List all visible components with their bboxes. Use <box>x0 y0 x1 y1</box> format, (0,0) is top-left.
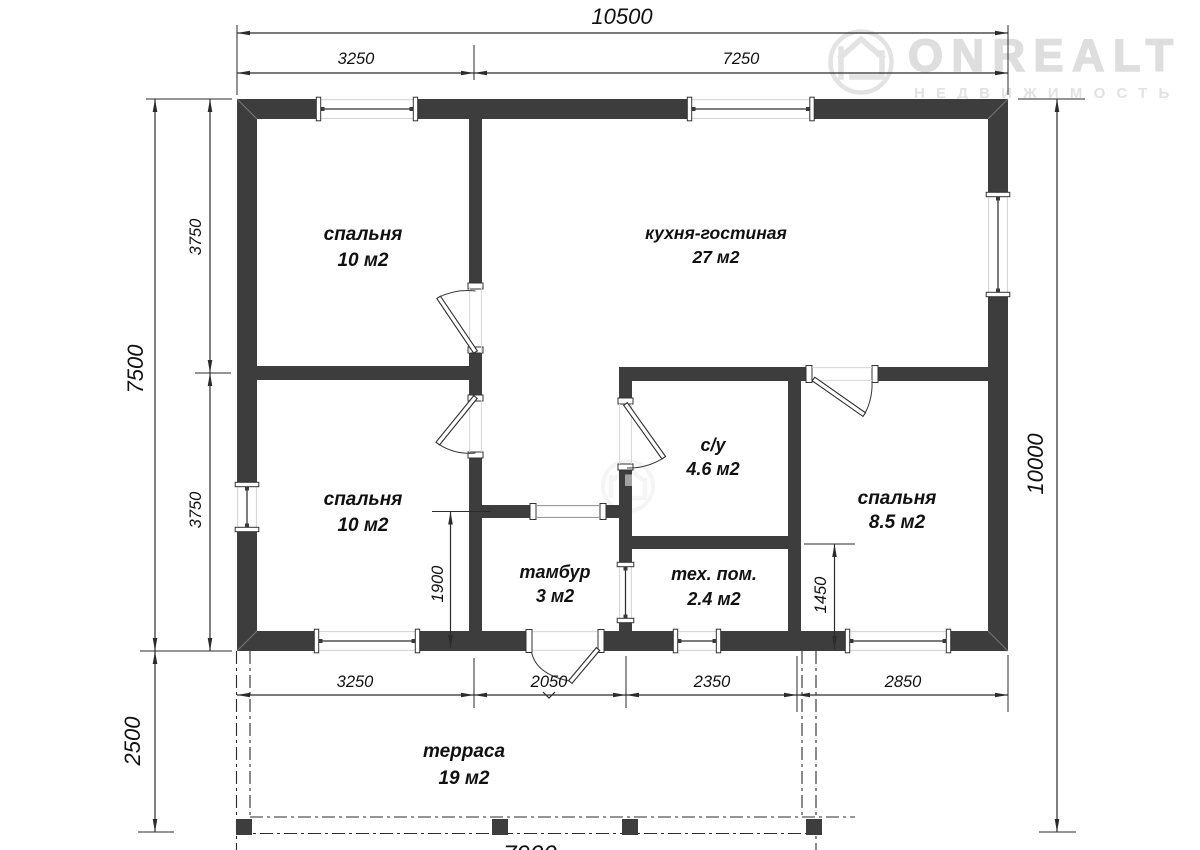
svg-text:19 м2: 19 м2 <box>438 768 489 789</box>
svg-text:тех. пом.: тех. пом. <box>671 564 757 584</box>
svg-text:тамбур: тамбур <box>519 562 590 582</box>
svg-text:10500: 10500 <box>591 4 653 29</box>
svg-text:2500: 2500 <box>120 716 145 767</box>
svg-text:10000: 10000 <box>1023 433 1048 495</box>
svg-text:1900: 1900 <box>429 565 447 603</box>
svg-text:7250: 7250 <box>723 50 761 68</box>
svg-text:7500: 7500 <box>123 344 148 394</box>
svg-text:1450: 1450 <box>812 576 830 614</box>
svg-text:спальня: спальня <box>324 489 403 510</box>
svg-text:с/у: с/у <box>700 435 726 455</box>
svg-text:3750: 3750 <box>187 218 205 256</box>
svg-text:2850: 2850 <box>884 673 923 691</box>
svg-text:2050: 2050 <box>530 673 569 691</box>
svg-text:8.5 м2: 8.5 м2 <box>869 512 926 533</box>
svg-text:терраса: терраса <box>423 741 506 762</box>
svg-text:спальня: спальня <box>324 224 403 245</box>
svg-text:2.4 м2: 2.4 м2 <box>686 589 740 609</box>
svg-text:кухня-гостиная: кухня-гостиная <box>645 223 787 243</box>
svg-text:3250: 3250 <box>337 673 375 691</box>
svg-text:7900: 7900 <box>503 841 557 850</box>
svg-text:спальня: спальня <box>858 488 937 509</box>
svg-text:3250: 3250 <box>338 50 376 68</box>
svg-text:3750: 3750 <box>187 491 205 529</box>
svg-text:27 м2: 27 м2 <box>691 247 739 267</box>
svg-text:10 м2: 10 м2 <box>337 515 388 536</box>
svg-text:2350: 2350 <box>693 673 732 691</box>
svg-text:4.6 м2: 4.6 м2 <box>685 459 739 479</box>
svg-text:10 м2: 10 м2 <box>337 250 388 271</box>
svg-text:3 м2: 3 м2 <box>536 586 574 606</box>
